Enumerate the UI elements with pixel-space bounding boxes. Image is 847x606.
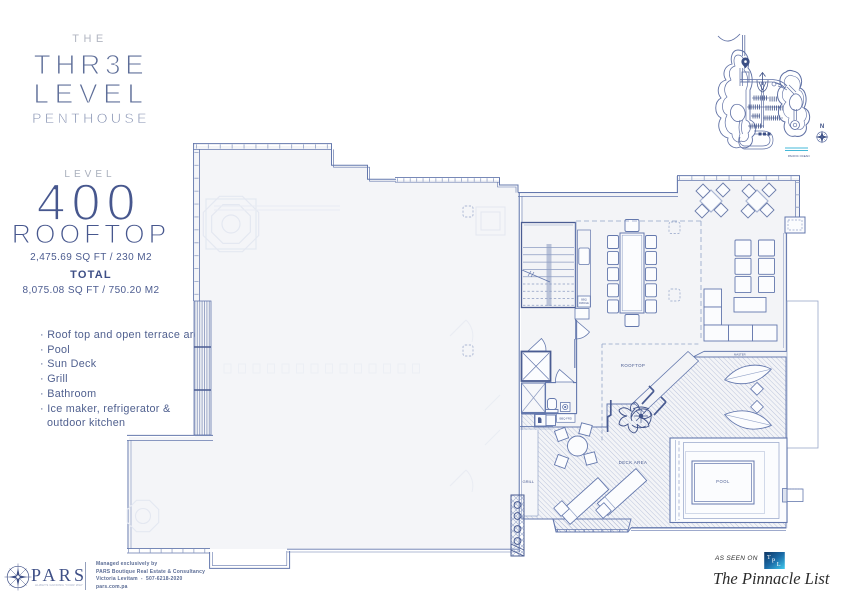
svg-text:BBQ FRD: BBQ FRD [559,416,571,420]
svg-text:FRIDGE: FRIDGE [579,301,589,305]
svg-text:GRILL: GRILL [523,479,535,484]
svg-text:DECK AREA: DECK AREA [619,460,648,465]
svg-text:MASTER: MASTER [734,353,746,357]
svg-text:T: T [767,554,771,561]
svg-text:PACIFIC OCEAN: PACIFIC OCEAN [788,154,810,158]
svg-text:P: P [772,557,776,564]
svg-text:ROOFTOP: ROOFTOP [621,363,645,368]
svg-text:N: N [820,124,824,130]
svg-text:POOL: POOL [716,479,730,484]
svg-text:L: L [777,561,781,568]
svg-text:BBQ: BBQ [581,298,586,302]
